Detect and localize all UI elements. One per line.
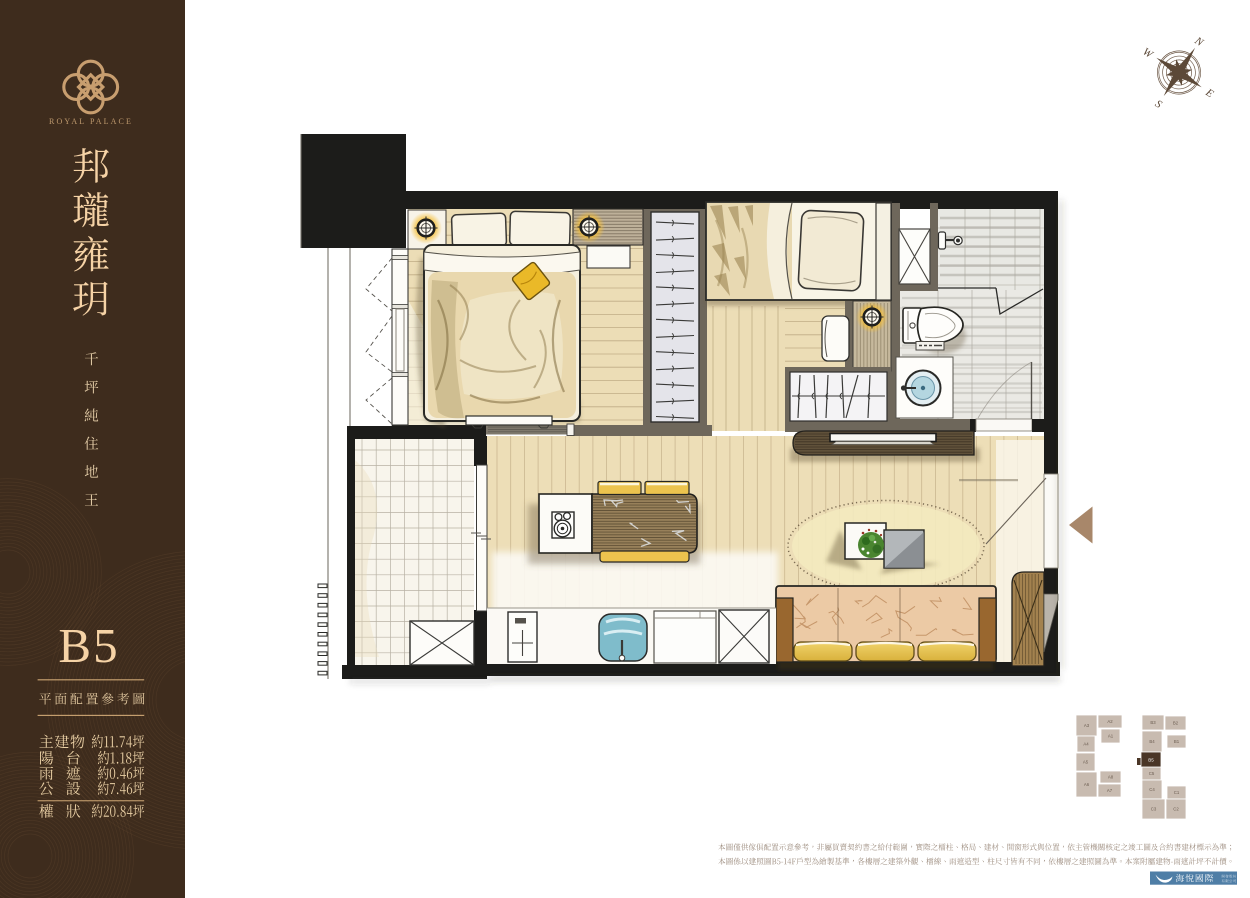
svg-text:N: N	[1192, 34, 1206, 49]
svg-text:E: E	[1203, 86, 1216, 100]
svg-text:A4: A4	[1083, 742, 1089, 747]
svg-text:B4: B4	[1149, 739, 1155, 744]
svg-text:A5: A5	[1083, 760, 1089, 765]
svg-text:B2: B2	[1173, 721, 1179, 726]
svg-text:A6: A6	[1084, 782, 1090, 787]
svg-text:C2: C2	[1173, 807, 1179, 812]
svg-text:A2: A2	[1107, 719, 1113, 724]
svg-text:A7: A7	[1107, 788, 1113, 793]
svg-text:B3: B3	[1150, 720, 1156, 725]
svg-text:C3: C3	[1151, 807, 1157, 812]
svg-text:ROYAL PALACE: ROYAL PALACE	[49, 117, 133, 126]
svg-text:C1: C1	[1174, 790, 1180, 795]
svg-text:W: W	[1140, 46, 1155, 62]
svg-text:A1: A1	[1108, 734, 1114, 739]
svg-text:S: S	[1153, 98, 1165, 111]
svg-text:B1: B1	[1174, 739, 1180, 744]
svg-text:A8: A8	[1108, 775, 1114, 780]
svg-text:B5: B5	[58, 618, 119, 673]
svg-text:B5: B5	[1148, 757, 1154, 762]
svg-text:C5: C5	[1149, 771, 1155, 776]
svg-text:C4: C4	[1149, 787, 1155, 792]
svg-text:A3: A3	[1084, 723, 1090, 728]
